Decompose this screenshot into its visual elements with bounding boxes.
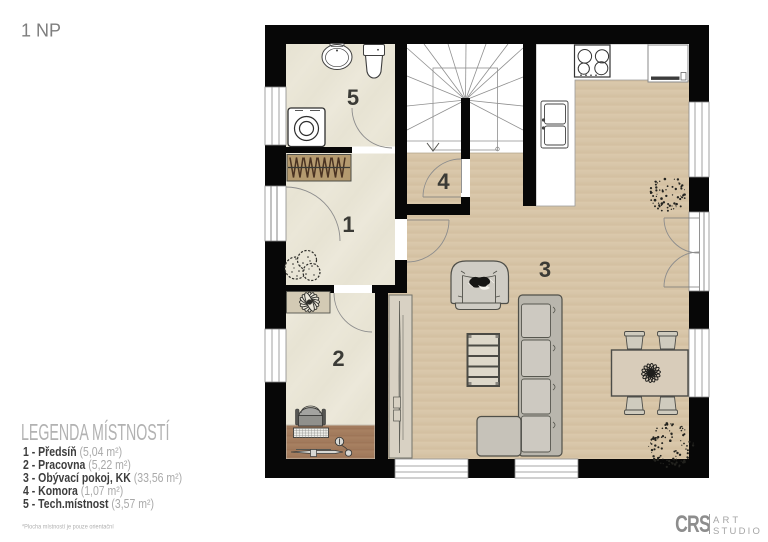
svg-text:5 - Tech.místnost (3,57 m²): 5 - Tech.místnost (3,57 m²) [23,498,154,511]
svg-text:1: 1 [342,212,354,237]
svg-text:ART: ART [713,515,741,526]
svg-text:LEGENDA MÍSTNOSTÍ: LEGENDA MÍSTNOSTÍ [21,418,170,446]
svg-text:2 - Pracovna (5,22 m²): 2 - Pracovna (5,22 m²) [23,459,131,472]
svg-text:3: 3 [539,257,551,282]
svg-text:*Plocha místností je pouze ori: *Plocha místností je pouze orientační [22,524,114,530]
svg-text:1 NP: 1 NP [21,21,61,41]
svg-text:4: 4 [437,169,450,194]
svg-text:CRS: CRS [675,511,711,537]
svg-text:3 - Obývací pokoj, KK (33,56 m: 3 - Obývací pokoj, KK (33,56 m²) [23,472,182,485]
svg-text:4 - Komora (1,07 m²): 4 - Komora (1,07 m²) [23,485,123,498]
svg-text:5: 5 [347,85,359,110]
svg-text:STUDIO: STUDIO [713,526,762,537]
svg-text:2: 2 [332,346,344,371]
svg-text:1 - Předsíň (5,04 m²): 1 - Předsíň (5,04 m²) [23,446,122,459]
